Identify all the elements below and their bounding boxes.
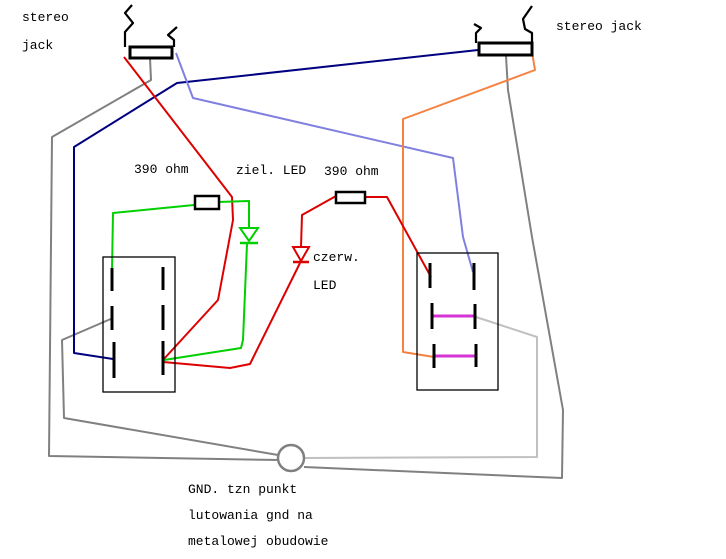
right-resistor-label: 390 ohm — [324, 165, 379, 179]
left-stereo-jack-body — [130, 47, 172, 58]
left-resistor-body — [195, 196, 219, 209]
gnd-label-line3: metalowej obudowie — [188, 534, 328, 549]
red-led-label-line1: czerw. — [313, 250, 360, 265]
wire-red-resistor-to-rightswitch — [365, 197, 431, 277]
green-led-label: ziel. LED — [236, 164, 306, 178]
wire-red-leftswitch-to-redled — [163, 263, 300, 368]
gnd-solder-point — [278, 445, 304, 471]
left-resistor-label: 390 ohm — [134, 163, 189, 177]
red-led-label-line2: LED — [313, 278, 336, 293]
red-led-label: czerw. LED — [313, 251, 360, 293]
gnd-label: GND. tzn punkt lutowania gnd na metalowe… — [188, 483, 328, 548]
diagram-canvas — [0, 0, 726, 559]
right-resistor-body — [336, 192, 365, 203]
wire-periwinkle-leftjack-to-rightswitch — [176, 53, 473, 272]
gnd-label-line2: lutowania gnd na — [188, 508, 313, 523]
wire-gray-leftswitch-to-gnd — [62, 318, 278, 455]
gnd-label-line1: GND. tzn punkt — [188, 482, 297, 497]
left-jack-label-line2: jack — [22, 38, 53, 53]
left-jack-prong-right-icon — [168, 27, 177, 47]
wire-gray-leftjack-sleeve-to-gnd — [49, 58, 279, 460]
left-jack-prong-left-icon — [125, 5, 133, 47]
wire-green-resistor-to-leftswitch — [112, 205, 194, 270]
wire-red-redled-to-resistor — [301, 196, 336, 247]
wiring-diagram: stereo jack stereo jack 390 ohm ziel. LE… — [0, 0, 726, 559]
green-led-icon — [240, 228, 258, 241]
red-led-icon — [293, 247, 309, 261]
left-switch-pins — [112, 267, 163, 378]
wire-green-greenled-to-leftswitch — [164, 244, 247, 360]
wire-orange-rightjack-to-rightswitch — [403, 52, 535, 357]
right-jack-label: stereo jack — [556, 20, 642, 34]
wire-silver-rightswitch-to-gnd — [304, 317, 537, 458]
right-jack-prong-left-icon — [474, 24, 481, 43]
right-stereo-jack-body — [479, 43, 532, 55]
left-jack-label: stereo jack — [22, 11, 69, 53]
right-jack-prong-right-icon — [523, 6, 532, 43]
left-jack-label-line1: stereo — [22, 10, 69, 25]
